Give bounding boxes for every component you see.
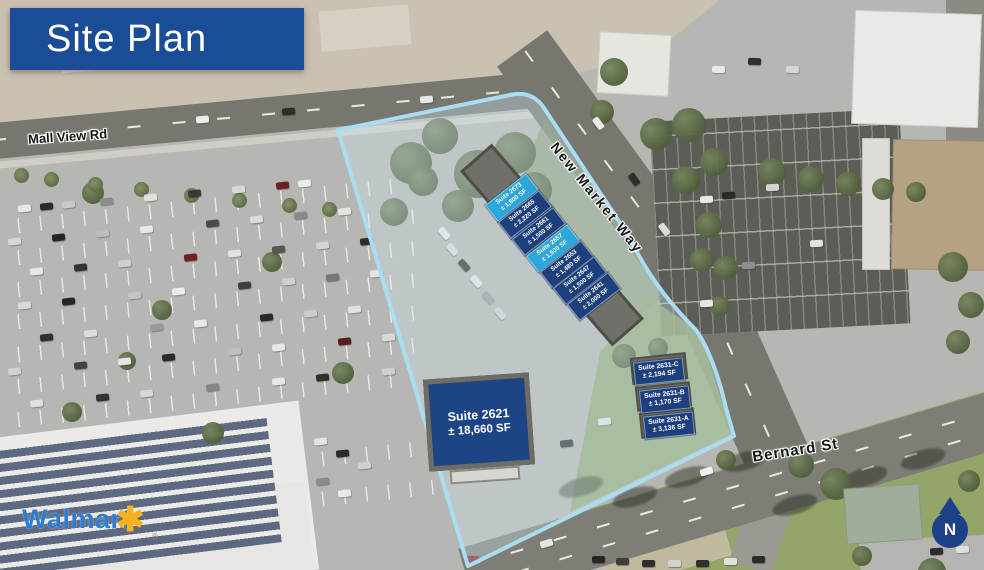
car [314,437,328,445]
tree [958,292,984,318]
car [712,66,725,73]
car [52,233,66,241]
car [766,184,779,191]
page-title: Site Plan [10,8,304,70]
tree [262,252,282,272]
tree [938,252,968,282]
car [128,291,142,299]
car [724,558,737,565]
bush [44,172,59,187]
car [338,337,352,345]
tree [700,148,728,176]
car [150,323,164,331]
car [446,242,459,256]
tree [408,166,438,196]
car [276,181,290,189]
car [722,192,735,199]
car [40,333,54,341]
tree [918,558,946,570]
bush [322,202,337,217]
car [62,200,76,208]
bush [88,177,103,192]
car [162,353,176,361]
car [96,393,110,401]
tree [696,212,722,238]
car [742,262,755,269]
car [752,556,765,563]
tree [836,172,860,196]
anchor-suite-sf: ± 18,660 SF [448,422,511,438]
car [18,301,32,309]
car [628,172,641,186]
tree-shadow [662,462,711,492]
car [294,211,308,219]
site-plan-map: Suite 2621 ± 18,660 SF Suite 2673 ± 1,80… [0,0,984,570]
car [370,269,384,277]
car [228,347,242,355]
tree [672,166,700,194]
title-banner: Site Plan [10,8,304,70]
car [140,389,154,397]
tree [958,470,980,492]
car [592,556,605,563]
tree [600,58,628,86]
car [930,548,943,555]
tree [640,118,672,150]
car [62,297,76,305]
car [282,277,296,285]
registered-mark: ® [152,532,158,541]
bush [282,198,297,213]
car [786,66,799,73]
walmart-logo-text: Walmart [22,504,131,535]
tree [690,248,714,272]
car [466,556,479,563]
car [482,290,495,304]
tree [332,362,354,384]
car [260,313,274,321]
car [700,300,713,307]
tree-shadow [556,472,605,502]
car [250,215,264,223]
tree [946,330,970,354]
car [668,560,681,567]
car [616,558,629,565]
car [30,399,44,407]
tree [714,256,738,280]
car [118,357,132,365]
car [358,461,372,469]
car [420,95,434,103]
tree [672,108,706,142]
tree [872,178,894,200]
car [382,367,396,375]
car [360,237,374,245]
car [282,107,296,115]
car [338,207,352,215]
car [748,58,761,65]
car [298,179,312,187]
car [348,305,362,313]
car [642,560,655,567]
tree [380,198,408,226]
car [336,449,350,457]
car [598,417,612,425]
car [30,267,44,275]
car [560,439,574,447]
car [956,546,969,553]
car [232,185,246,193]
tree [716,450,736,470]
car [316,373,330,381]
car [382,333,396,341]
car [494,306,507,320]
bush [14,168,29,183]
tree-shadow [770,490,819,520]
tree [906,182,926,202]
walmart-spark-icon: ✱ [116,500,145,540]
car [272,343,286,351]
tree [202,422,224,444]
tree [758,158,786,186]
car [140,225,154,233]
car [700,196,713,203]
car [238,281,252,289]
car [272,245,286,253]
house-roof [843,483,923,544]
bush [232,193,247,208]
car [470,274,483,288]
tree [710,296,730,316]
tree [422,118,458,154]
map-decorations [0,0,984,570]
car [326,273,340,281]
car [18,204,32,212]
north-badge: N [932,512,968,548]
tree-shadow [898,444,947,474]
car [658,222,671,236]
car [100,197,114,205]
anchor-building-2621: Suite 2621 ± 18,660 SF [423,372,535,471]
car [696,560,709,567]
tree [442,190,474,222]
tree [62,402,82,422]
car [810,240,823,247]
tree [152,300,172,320]
car [228,249,242,257]
car [172,287,186,295]
car [206,219,220,227]
anchor-suite-name: Suite 2621 [447,406,510,424]
car [458,258,471,272]
car [144,193,158,201]
car [316,241,330,249]
car [74,361,88,369]
car [188,189,202,197]
car [118,259,132,267]
tree [798,166,824,192]
car [96,229,110,237]
car [272,377,286,385]
car [8,367,22,375]
car [74,263,88,271]
car [304,309,318,317]
car [8,237,22,245]
car [196,115,210,123]
tree [852,546,872,566]
car [316,477,330,485]
car [40,202,54,210]
car [194,319,208,327]
car [184,253,198,261]
tree-shadow [610,482,659,512]
car [338,489,352,497]
north-label: N [944,520,956,540]
car [206,383,220,391]
car [438,226,451,240]
car [84,329,98,337]
car [539,538,553,548]
